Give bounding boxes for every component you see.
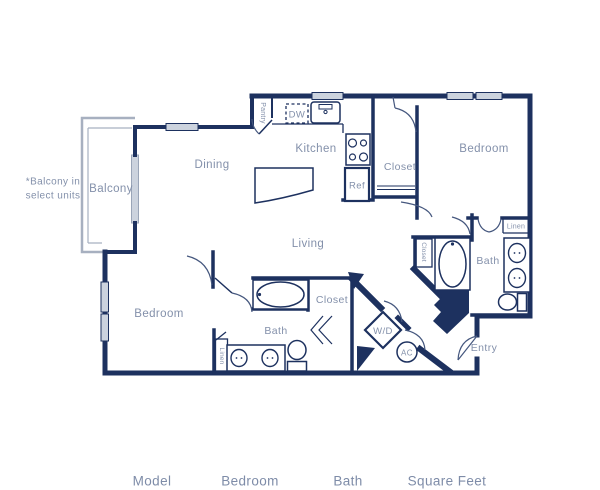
balcony-note-line2: select units: [26, 191, 81, 202]
room-label-bedroom-top: Bedroom: [459, 143, 508, 155]
window: [101, 314, 109, 341]
label-refrigerator: Ref: [349, 181, 365, 192]
room-label-bath-mid: Bath: [264, 325, 287, 337]
table-header-bedroom: Bedroom: [221, 474, 279, 489]
table-header-bath: Bath: [333, 474, 362, 489]
label-linen-mid: Linen: [218, 348, 225, 365]
bathtub-right: [435, 238, 470, 290]
label-linen-right: Linen: [507, 223, 525, 230]
plan-info-table: Model Bedroom Bath Square Feet: [133, 474, 487, 489]
table-header-square-feet: Square Feet: [408, 474, 487, 489]
exterior-walls: [105, 96, 530, 373]
vanity-right: [504, 238, 530, 292]
floorplan-page: *Balcony in select units Balcony Dining …: [0, 0, 600, 490]
room-label-closet-top: Closet: [384, 161, 416, 173]
window: [447, 93, 473, 100]
bathtub-mid: [253, 280, 308, 309]
stove: [346, 134, 370, 165]
window: [101, 282, 109, 312]
window: [312, 93, 343, 100]
room-label-dining: Dining: [194, 159, 229, 171]
room-label-closet-hall: Closet: [420, 242, 427, 262]
bath-mid-fixtures: [187, 256, 332, 371]
label-ac: AC: [401, 349, 413, 358]
room-label-closet-mid: Closet: [316, 294, 348, 306]
balcony-note-line1: *Balcony in: [26, 177, 80, 188]
room-label-living: Living: [292, 238, 324, 250]
table-header-model: Model: [133, 474, 172, 489]
kitchen-sink: [311, 102, 340, 123]
bifold-doors: [311, 316, 323, 344]
room-label-bedroom-left: Bedroom: [134, 308, 183, 320]
label-dishwasher: DW: [289, 110, 306, 121]
label-washer-dryer: W/D: [373, 326, 393, 337]
room-label-balcony: Balcony: [89, 183, 133, 195]
closet-top-fixtures: [377, 97, 416, 190]
room-label-kitchen: Kitchen: [295, 143, 336, 155]
room-label-entry: Entry: [471, 342, 498, 354]
window: [166, 124, 198, 131]
window: [476, 93, 502, 100]
floorplan-svg: *Balcony in select units Balcony Dining …: [0, 0, 600, 490]
toilet-right: [499, 294, 527, 312]
kitchen-island: [255, 168, 313, 203]
room-label-pantry: Pantry: [259, 102, 266, 124]
room-label-bath-right: Bath: [476, 255, 499, 267]
vanity-mid: [227, 345, 285, 371]
toilet-mid: [288, 341, 307, 372]
wall-wedge: [357, 346, 375, 371]
bifold-doors: [319, 316, 332, 344]
